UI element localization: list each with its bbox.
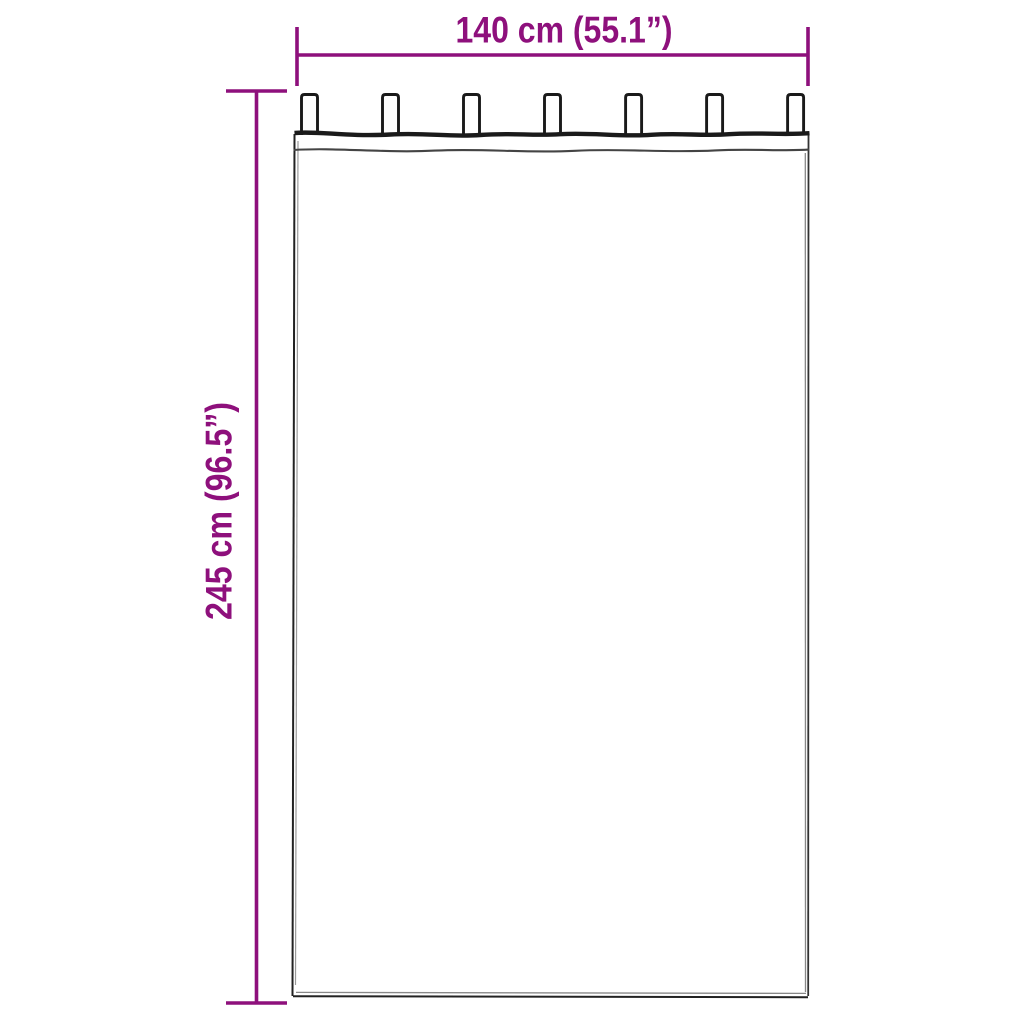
svg-text:245 cm (96.5”): 245 cm (96.5”) (199, 402, 240, 620)
svg-text:140 cm (55.1”): 140 cm (55.1”) (456, 10, 673, 51)
